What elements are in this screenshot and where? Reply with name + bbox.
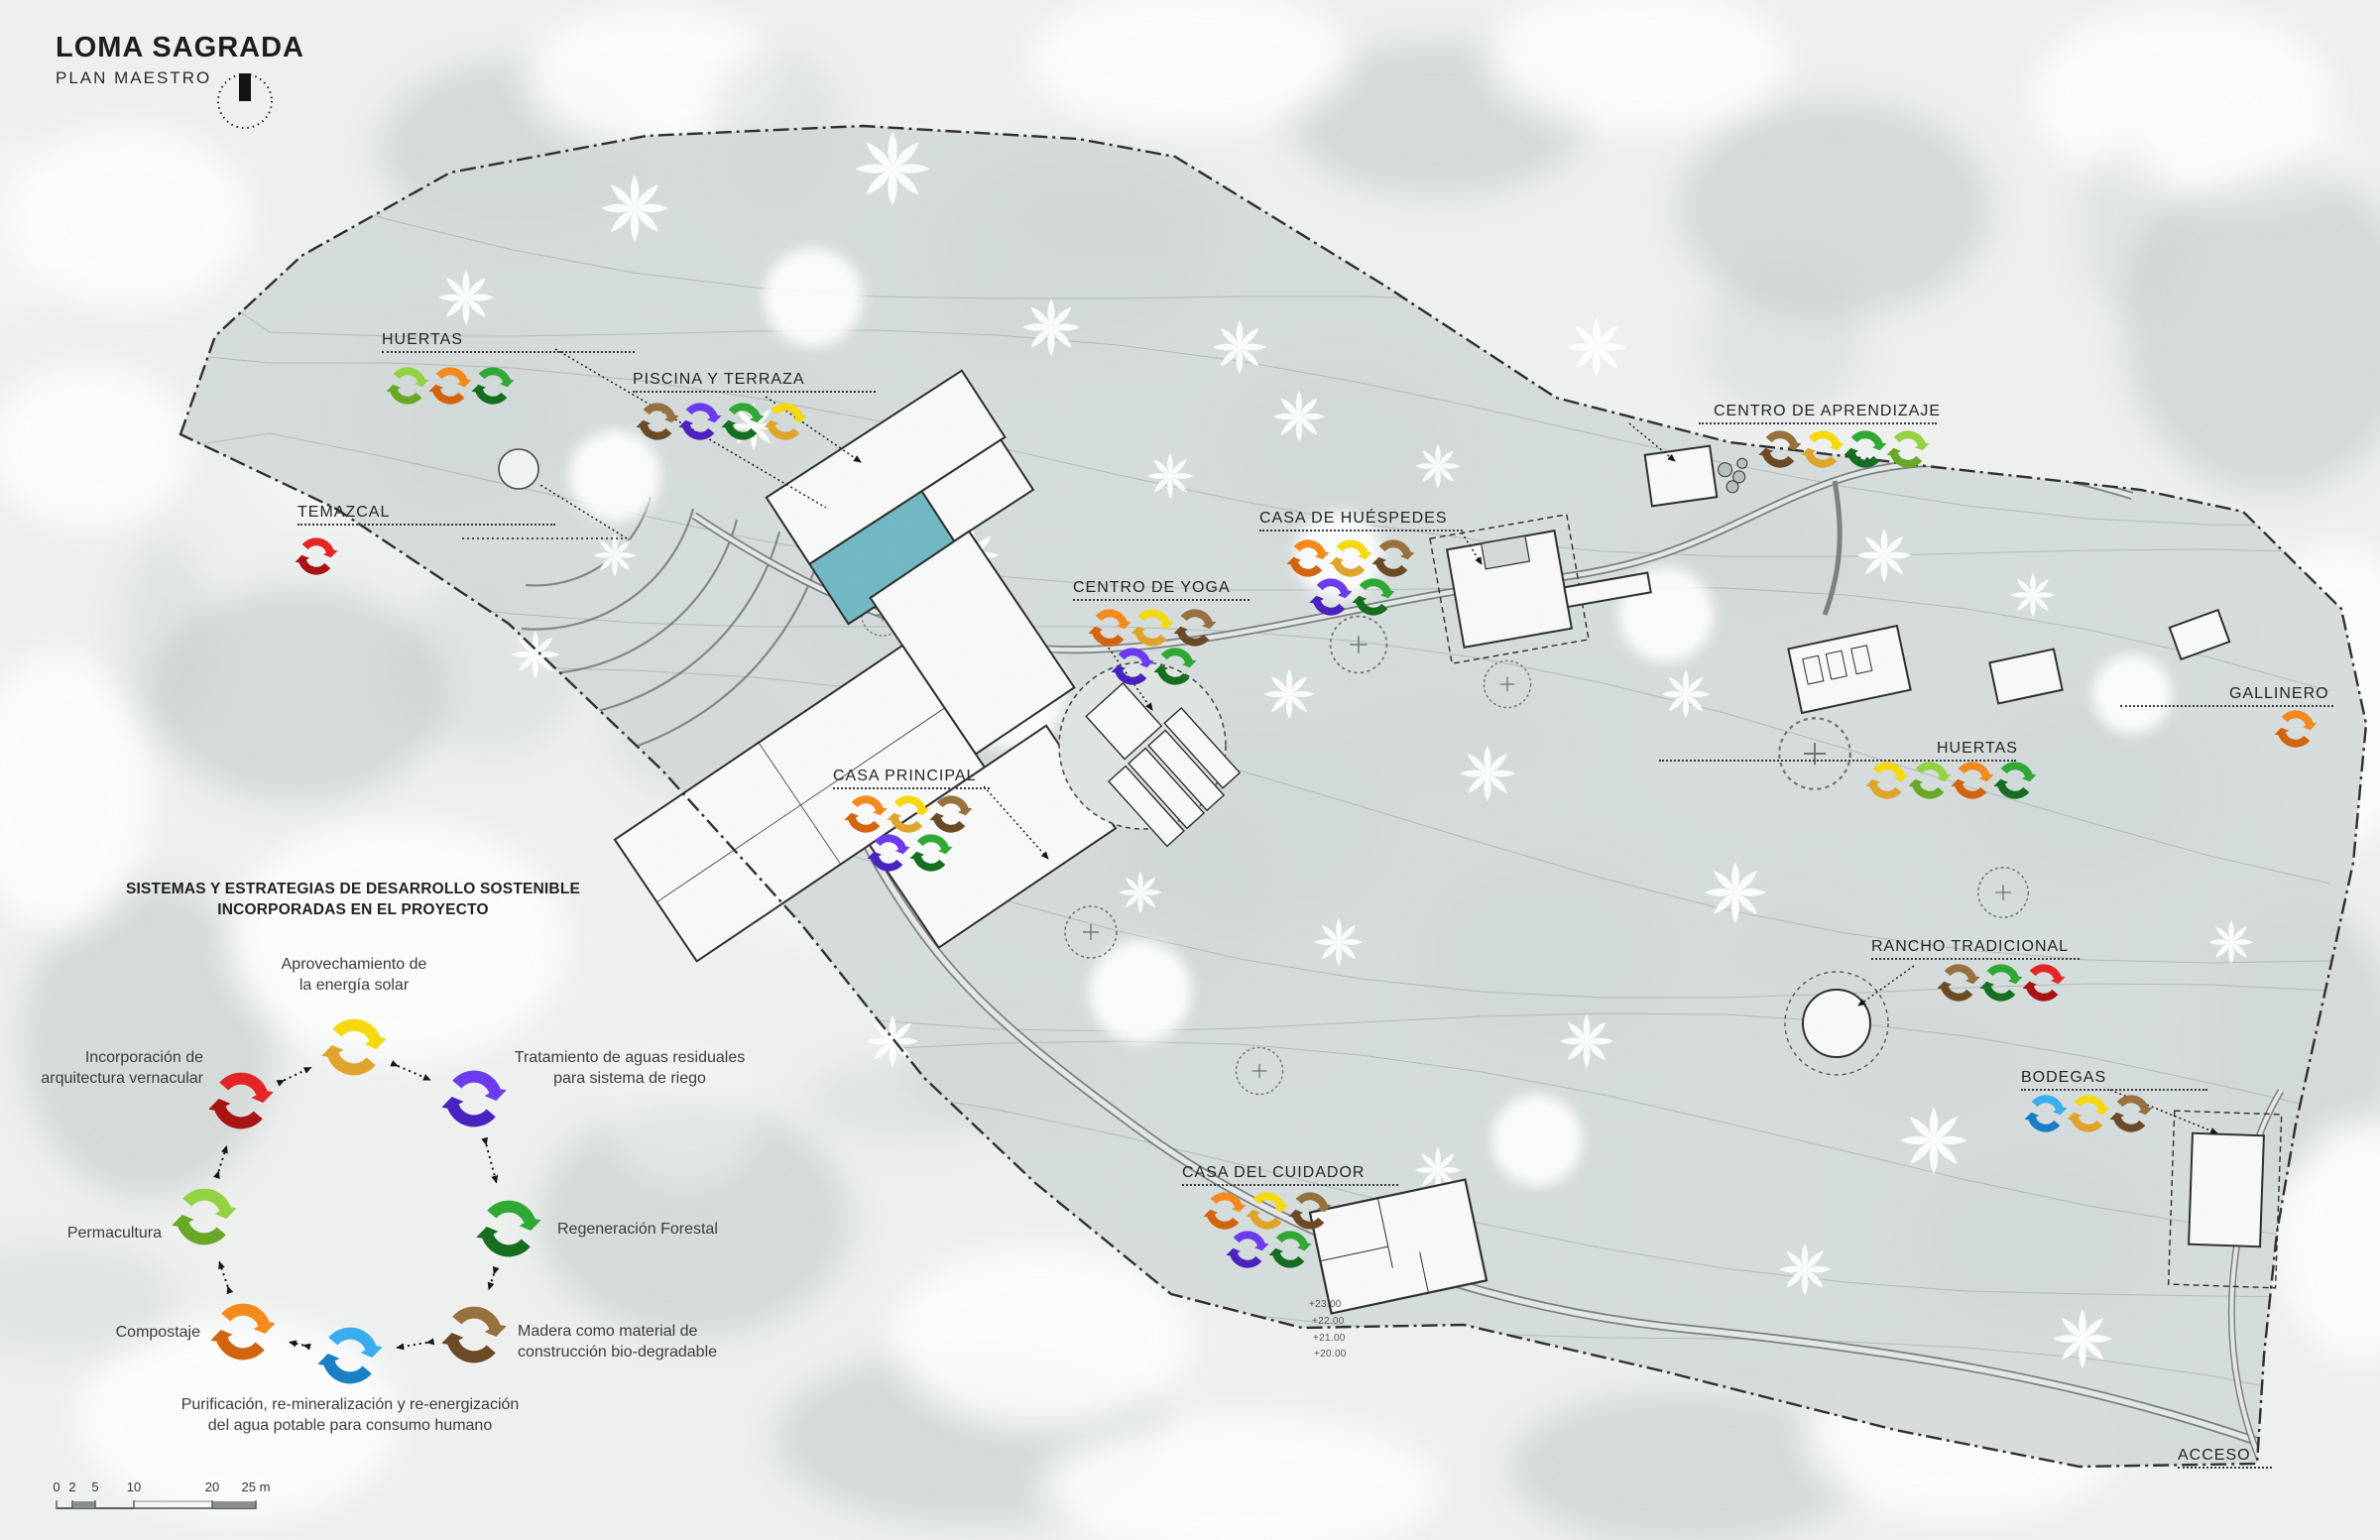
label-underline xyxy=(382,351,635,353)
permaculture-cycle-icon xyxy=(1907,758,1953,803)
site-label-gallinero: GALLINERO xyxy=(2229,685,2333,707)
site-label-text: HUERTAS xyxy=(1937,740,2018,757)
scalebar-tick-label: 25 m xyxy=(242,1480,271,1494)
site-label-huertas-oeste: HUERTAS xyxy=(382,331,635,353)
scalebar-tick-label: 20 xyxy=(205,1480,219,1494)
label-underline xyxy=(833,787,990,789)
solar-energy-cycle-icon xyxy=(2066,1091,2111,1136)
label-underline xyxy=(1699,422,1937,424)
site-icon-row xyxy=(1757,426,1928,472)
site-icon-row xyxy=(1308,574,1393,620)
site-label-text: HUERTAS xyxy=(382,331,463,348)
permaculture-cycle-icon xyxy=(170,1182,239,1251)
composting-cycle-icon xyxy=(208,1297,278,1366)
label-underline xyxy=(1073,599,1249,601)
greywater-treatment-cycle-icon xyxy=(677,399,723,444)
site-label-centro-yoga: CENTRO DE YOGA xyxy=(1073,579,1249,601)
site-label-centro-aprendizaje: CENTRO DE APRENDIZAJE xyxy=(1714,403,1941,424)
forest-regeneration-cycle-icon xyxy=(1978,960,2024,1006)
forest-regeneration-cycle-icon xyxy=(1267,1227,1313,1272)
label-underline xyxy=(2178,1467,2272,1469)
site-label-text: ACCESO xyxy=(2178,1447,2251,1464)
site-icon-row xyxy=(1864,758,2035,803)
water-purification-cycle-icon xyxy=(2023,1091,2069,1136)
vernacular-architecture-cycle-icon xyxy=(206,1066,276,1135)
site-label-temazcal: TEMAZCAL xyxy=(297,504,555,526)
site-label-rancho-tradicional: RANCHO TRADICIONAL xyxy=(1871,938,2080,960)
legend-title: SISTEMAS Y ESTRATEGIAS DE DESARROLLO SOS… xyxy=(95,879,611,920)
site-label-text: TEMAZCAL xyxy=(297,504,390,521)
label-underline xyxy=(633,391,876,393)
biodegradable-wood-cycle-icon xyxy=(635,399,680,444)
composting-cycle-icon xyxy=(2273,706,2319,752)
legend-label-forest-regeneration: Regeneración Forestal xyxy=(557,1219,718,1240)
site-label-casa-principal: CASA PRINCIPAL xyxy=(833,768,990,789)
project-title: LOMA SAGRADA xyxy=(56,32,304,64)
site-label-text: BODEGAS xyxy=(2021,1069,2106,1086)
site-label-text: CASA DE HUÉSPEDES xyxy=(1259,510,1448,527)
site-icon-row xyxy=(2023,1091,2151,1136)
solar-energy-cycle-icon xyxy=(1800,426,1845,472)
site-label-piscina-terraza: PISCINA Y TERRAZA xyxy=(633,371,876,393)
elevation-label: +21.00 xyxy=(1313,1333,1346,1344)
site-icon-row xyxy=(866,830,951,876)
greywater-treatment-cycle-icon xyxy=(439,1064,509,1133)
scalebar-tick-label: 0 xyxy=(53,1480,59,1494)
permaculture-cycle-icon xyxy=(1885,426,1931,472)
solar-energy-cycle-icon xyxy=(1864,758,1910,803)
forest-regeneration-cycle-icon xyxy=(720,399,766,444)
site-label-text: CASA PRINCIPAL xyxy=(833,768,976,784)
forest-regeneration-cycle-icon xyxy=(1152,644,1198,689)
site-label-text: CASA DEL CUIDADOR xyxy=(1182,1164,1365,1181)
label-underline xyxy=(1182,1184,1398,1186)
legend-label-water-purification: Purificación, re-mineralización y re-ene… xyxy=(181,1394,520,1436)
solar-energy-cycle-icon xyxy=(763,399,808,444)
site-label-text: CENTRO DE APRENDIZAJE xyxy=(1714,403,1941,419)
scalebar-tick-label: 5 xyxy=(91,1480,98,1494)
greywater-treatment-cycle-icon xyxy=(1110,644,1155,689)
biodegradable-wood-cycle-icon xyxy=(2108,1091,2154,1136)
composting-cycle-icon xyxy=(427,363,473,409)
elevation-label: +22.00 xyxy=(1312,1316,1345,1327)
solar-energy-cycle-icon xyxy=(319,1012,389,1082)
site-label-text: PISCINA Y TERRAZA xyxy=(633,371,805,388)
site-label-text: GALLINERO xyxy=(2229,685,2329,702)
vernacular-architecture-cycle-icon xyxy=(294,533,339,579)
label-underline xyxy=(297,524,555,526)
forest-regeneration-cycle-icon xyxy=(1992,758,2038,803)
site-icon-row xyxy=(1110,644,1195,689)
water-purification-cycle-icon xyxy=(315,1321,385,1390)
greywater-treatment-cycle-icon xyxy=(1308,574,1354,620)
legend-label-vernacular-architecture: Incorporación dearquitectura vernacular xyxy=(41,1047,203,1089)
scalebar-tick-label: 2 xyxy=(68,1480,75,1494)
biodegradable-wood-cycle-icon xyxy=(1757,426,1803,472)
site-icon-row xyxy=(294,533,336,579)
elevation-label: +20.00 xyxy=(1314,1349,1347,1360)
forest-regeneration-cycle-icon xyxy=(470,363,516,409)
elevation-label: +23.00 xyxy=(1309,1299,1342,1310)
greywater-treatment-cycle-icon xyxy=(866,830,911,876)
title-block: LOMA SAGRADA PLAN MAESTRO xyxy=(56,32,304,88)
forest-regeneration-cycle-icon xyxy=(1843,426,1888,472)
site-icon-row xyxy=(385,363,513,409)
forest-regeneration-cycle-icon xyxy=(474,1194,543,1263)
greywater-treatment-cycle-icon xyxy=(1225,1227,1270,1272)
site-label-casa-huespedes: CASA DE HUÉSPEDES xyxy=(1259,510,1463,532)
site-icon-row xyxy=(2273,706,2316,752)
composting-cycle-icon xyxy=(1950,758,1995,803)
forest-regeneration-cycle-icon xyxy=(908,830,954,876)
legend-label-greywater-treatment: Tratamiento de aguas residualespara sist… xyxy=(515,1047,745,1089)
permaculture-cycle-icon xyxy=(385,363,430,409)
site-icon-row xyxy=(1225,1227,1310,1272)
legend-label-composting: Compostaje xyxy=(116,1322,200,1343)
site-label-acceso: ACCESO xyxy=(2178,1447,2272,1469)
site-label-bodegas: BODEGAS xyxy=(2021,1069,2207,1091)
site-label-text: RANCHO TRADICIONAL xyxy=(1871,938,2069,955)
label-underline xyxy=(1259,530,1463,532)
scalebar-tick-label: 10 xyxy=(127,1480,141,1494)
site-icon-row xyxy=(635,399,805,444)
legend-label-permaculture: Permacultura xyxy=(67,1223,162,1244)
legend-label-solar-energy: Aprovechamiento dela energía solar xyxy=(282,954,427,996)
biodegradable-wood-cycle-icon xyxy=(439,1300,509,1369)
site-label-casa-cuidador: CASA DEL CUIDADOR xyxy=(1182,1164,1398,1186)
vernacular-architecture-cycle-icon xyxy=(2021,960,2067,1006)
legend-label-biodegradable-wood: Madera como material deconstrucción bio-… xyxy=(518,1321,717,1362)
biodegradable-wood-cycle-icon xyxy=(1936,960,1981,1006)
site-icon-row xyxy=(1936,960,2064,1006)
site-label-text: CENTRO DE YOGA xyxy=(1073,579,1231,596)
master-plan-sheet: { "header": { "title": "LOMA SAGRADA", "… xyxy=(0,0,2380,1540)
sheet-subtitle: PLAN MAESTRO xyxy=(56,68,304,88)
forest-regeneration-cycle-icon xyxy=(1351,574,1396,620)
